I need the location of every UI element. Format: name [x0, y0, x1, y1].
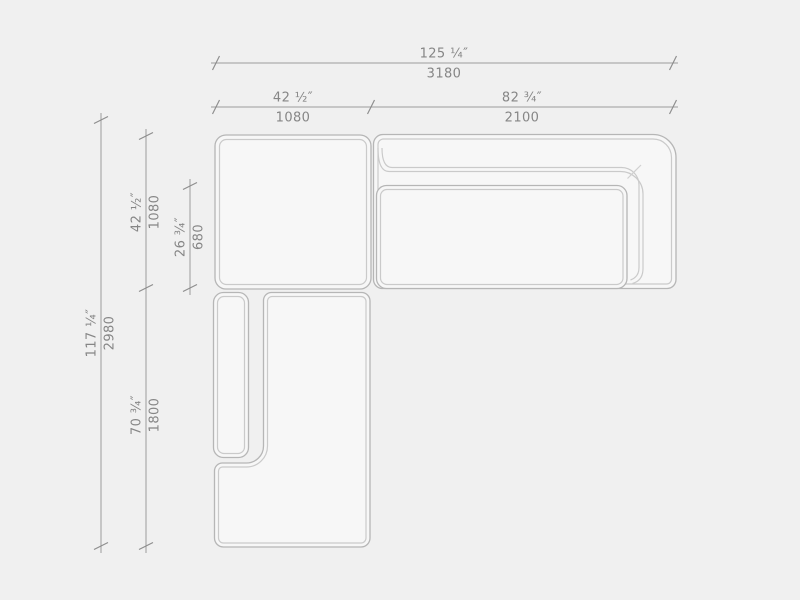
corner-module-outer-outline [215, 135, 371, 289]
dim-total-width-inches: 125 ¼″ [420, 47, 469, 62]
sofa-drawing-group [214, 135, 677, 548]
dim-sofa-width-inches: 82 ¾″ [502, 91, 542, 106]
sectional-sofa-top-view [0, 0, 800, 600]
dimension-lines-group [94, 56, 678, 553]
dim-chaise-depth-mm: 1800 [148, 398, 163, 433]
dim-total-depth-inches: 117 ¼″ [85, 309, 100, 358]
dim-seat-depth-inches: 26 ¾″ [174, 217, 189, 257]
chaise-armrest-outer [214, 293, 249, 458]
dim-corner-width-inches: 42 ½″ [273, 91, 313, 106]
dim-sofa-width-mm: 2100 [505, 111, 540, 126]
dim-corner-depth-inches: 42 ½″ [130, 192, 145, 232]
dim-corner-depth-mm: 1080 [148, 195, 163, 230]
dim-total-width-mm: 3180 [427, 67, 462, 82]
dim-seat-depth-mm: 680 [192, 224, 207, 250]
sofa-seat-cushion-outer [377, 186, 628, 289]
dim-chaise-depth-inches: 70 ¾″ [130, 395, 145, 435]
dim-total-depth-mm: 2980 [103, 316, 118, 351]
sofa-dimension-diagram: 125 ¼″ 3180 42 ½″ 1080 82 ¾″ 2100 117 ¼″… [0, 0, 800, 600]
dim-corner-width-mm: 1080 [276, 111, 311, 126]
